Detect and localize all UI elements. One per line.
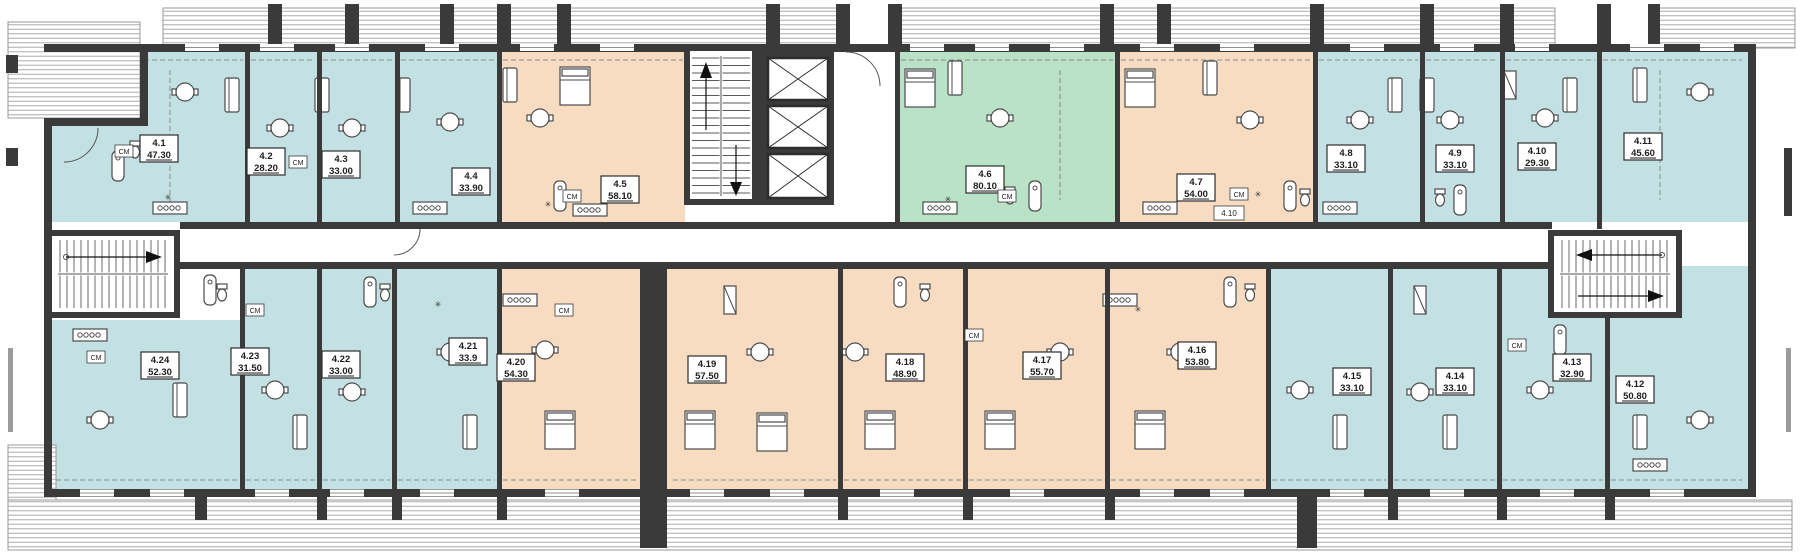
apartment-label-4.19: 4.1957.50 bbox=[688, 356, 726, 383]
svg-text:✳: ✳ bbox=[545, 200, 552, 209]
apartment-label-4.1: 4.147.30 bbox=[140, 135, 178, 162]
svg-text:4.14: 4.14 bbox=[1446, 371, 1465, 382]
furniture-item bbox=[293, 415, 307, 449]
party-wall-right bbox=[1297, 493, 1317, 548]
furniture-item bbox=[1414, 286, 1426, 314]
washer-tag: СМ bbox=[246, 304, 264, 316]
svg-text:4.13: 4.13 bbox=[1563, 357, 1582, 368]
floor-plan-page: 4.147.30 4.228.20 4.333.00 4.433.90 4.55… bbox=[0, 0, 1800, 557]
apartment-4.8[interactable] bbox=[1313, 50, 1420, 222]
svg-text:✳: ✳ bbox=[945, 195, 952, 204]
apartment-label-4.20: 4.2054.30 bbox=[497, 354, 535, 381]
svg-text:СМ: СМ bbox=[559, 308, 570, 315]
svg-text:4.21: 4.21 bbox=[459, 341, 478, 352]
svg-text:4.6: 4.6 bbox=[978, 169, 991, 180]
balcony-left-corner bbox=[8, 22, 140, 118]
apartment-label-4.15: 4.1533.10 bbox=[1333, 368, 1371, 395]
furniture-item bbox=[153, 202, 187, 214]
elevator-shafts bbox=[768, 58, 828, 198]
svg-text:50.80: 50.80 bbox=[1623, 391, 1647, 402]
svg-text:СМ: СМ bbox=[1002, 194, 1013, 201]
svg-text:33.10: 33.10 bbox=[1334, 160, 1358, 171]
furniture-item bbox=[1633, 68, 1647, 102]
apartment-label-4.23: 4.2331.50 bbox=[231, 348, 269, 375]
apartment-4.22[interactable] bbox=[317, 266, 392, 493]
apartment-4.23[interactable] bbox=[240, 266, 317, 493]
furniture-item bbox=[217, 284, 227, 301]
apartment-label-4.7: 4.754.00 bbox=[1177, 174, 1215, 201]
furniture-item bbox=[1029, 181, 1041, 211]
svg-text:СМ: СМ bbox=[250, 308, 261, 315]
balcony-bottom bbox=[8, 500, 1792, 550]
svg-text:4.9: 4.9 bbox=[1448, 148, 1461, 159]
svg-text:4.22: 4.22 bbox=[332, 354, 351, 365]
washer-tag: СМ bbox=[998, 190, 1016, 202]
apartment-label-4.9: 4.933.10 bbox=[1436, 145, 1474, 172]
furniture-item bbox=[413, 202, 447, 214]
svg-text:33.10: 33.10 bbox=[1443, 160, 1467, 171]
svg-text:4.10: 4.10 bbox=[1528, 146, 1547, 157]
svg-text:33.10: 33.10 bbox=[1443, 383, 1467, 394]
svg-text:4.4: 4.4 bbox=[464, 171, 478, 182]
furniture-item bbox=[503, 68, 517, 102]
svg-text:✳: ✳ bbox=[435, 300, 442, 309]
furniture-item bbox=[1135, 411, 1165, 449]
furniture-item bbox=[1300, 189, 1310, 206]
svg-text:✳: ✳ bbox=[1135, 305, 1142, 314]
svg-text:31.50: 31.50 bbox=[238, 363, 262, 374]
furniture-item bbox=[1563, 78, 1577, 112]
apartment-label-4.18: 4.1848.90 bbox=[886, 354, 924, 381]
svg-text:47.30: 47.30 bbox=[147, 150, 171, 161]
furniture-item bbox=[573, 204, 607, 216]
svg-text:СМ: СМ bbox=[1234, 192, 1245, 199]
svg-text:4.8: 4.8 bbox=[1339, 148, 1352, 159]
furniture-item bbox=[1443, 415, 1457, 449]
svg-text:54.30: 54.30 bbox=[504, 369, 528, 380]
furniture-item bbox=[948, 61, 962, 95]
svg-text:53.80: 53.80 bbox=[1185, 357, 1209, 368]
apartment-4.4[interactable] bbox=[395, 50, 497, 222]
furniture-item bbox=[985, 411, 1015, 449]
apartment-label-4.10: 4.1029.30 bbox=[1518, 143, 1556, 170]
svg-text:58.10: 58.10 bbox=[608, 191, 632, 202]
apartment-label-4.5: 4.558.10 bbox=[601, 176, 639, 203]
svg-text:57.50: 57.50 bbox=[695, 371, 719, 382]
svg-text:4.19: 4.19 bbox=[698, 359, 717, 370]
furniture-item bbox=[1203, 61, 1217, 95]
svg-text:55.70: 55.70 bbox=[1030, 367, 1054, 378]
apartment-label-4.24: 4.2452.30 bbox=[141, 352, 179, 379]
apartment-label-4.17: 4.1755.70 bbox=[1023, 352, 1061, 379]
svg-text:✳: ✳ bbox=[1255, 190, 1262, 199]
svg-text:4.16: 4.16 bbox=[1188, 345, 1207, 356]
furniture-item bbox=[923, 202, 957, 214]
apartment-label-4.11: 4.1145.60 bbox=[1624, 133, 1662, 160]
svg-text:33.90: 33.90 bbox=[459, 183, 483, 194]
furniture-item bbox=[380, 284, 390, 301]
apartment-label-4.2: 4.228.20 bbox=[247, 148, 285, 175]
furniture-item bbox=[757, 413, 787, 451]
svg-text:80.10: 80.10 bbox=[973, 181, 997, 192]
apartment-4.24[interactable] bbox=[48, 320, 240, 493]
furniture-item bbox=[1224, 277, 1236, 307]
furniture-item bbox=[894, 277, 906, 307]
apartment-label-4.4: 4.433.90 bbox=[452, 168, 490, 195]
furniture-item bbox=[1454, 185, 1466, 215]
svg-text:45.60: 45.60 bbox=[1631, 148, 1655, 159]
apartment-label-4.21: 4.2133.9 bbox=[449, 338, 487, 365]
svg-text:33.9: 33.9 bbox=[459, 353, 478, 364]
furniture-item bbox=[73, 329, 107, 341]
apartment-4.5[interactable] bbox=[497, 50, 685, 222]
furniture-item bbox=[1125, 69, 1155, 107]
apartment-label-4.13: 4.1332.90 bbox=[1553, 354, 1591, 381]
furniture-item bbox=[1554, 325, 1566, 355]
furniture-item bbox=[1388, 78, 1402, 112]
svg-text:52.30: 52.30 bbox=[148, 367, 172, 378]
furniture-item bbox=[1633, 459, 1667, 471]
svg-text:48.90: 48.90 bbox=[893, 369, 917, 380]
apartment-label-4.12: 4.1250.80 bbox=[1616, 376, 1654, 403]
svg-text:33.00: 33.00 bbox=[329, 366, 353, 377]
furniture-item bbox=[1143, 202, 1177, 214]
svg-text:4.10: 4.10 bbox=[1221, 209, 1237, 218]
balcony-top-right bbox=[1655, 8, 1795, 48]
furniture-item bbox=[1504, 71, 1516, 99]
svg-text:4.20: 4.20 bbox=[507, 357, 526, 368]
svg-text:СМ: СМ bbox=[567, 194, 578, 201]
svg-text:4.1: 4.1 bbox=[152, 138, 166, 149]
washer-tag: СМ bbox=[555, 304, 573, 316]
svg-text:СМ: СМ bbox=[119, 149, 130, 156]
furniture-item bbox=[1333, 415, 1347, 449]
svg-text:54.00: 54.00 bbox=[1184, 189, 1208, 200]
right-stairwell bbox=[1548, 230, 1682, 318]
svg-text:28.20: 28.20 bbox=[254, 163, 278, 174]
svg-text:32.90: 32.90 bbox=[1560, 369, 1584, 380]
left-stairwell bbox=[44, 230, 180, 318]
washer-tag: СМ bbox=[115, 145, 133, 157]
svg-text:4.7: 4.7 bbox=[1189, 177, 1202, 188]
furniture-item bbox=[920, 284, 930, 301]
party-wall-center bbox=[640, 262, 667, 548]
washer-tag: СМ bbox=[1230, 188, 1248, 200]
central-core bbox=[684, 45, 834, 205]
svg-text:29.30: 29.30 bbox=[1525, 158, 1549, 169]
apartment-4.21[interactable] bbox=[392, 266, 497, 493]
svg-text:СМ: СМ bbox=[969, 333, 980, 340]
furniture-item bbox=[503, 294, 537, 306]
furniture-item bbox=[685, 411, 715, 449]
svg-text:✳: ✳ bbox=[165, 193, 172, 202]
svg-text:4.18: 4.18 bbox=[896, 357, 915, 368]
furniture-item bbox=[560, 67, 590, 105]
furniture-item bbox=[364, 277, 376, 307]
furniture-item bbox=[1435, 189, 1445, 206]
svg-text:4.23: 4.23 bbox=[241, 351, 260, 362]
svg-text:4.3: 4.3 bbox=[334, 154, 347, 165]
apartment-label-4.8: 4.833.10 bbox=[1327, 145, 1365, 172]
svg-text:СМ: СМ bbox=[91, 355, 102, 362]
balcony-top-middle bbox=[895, 8, 1555, 48]
apartment-label-4.22: 4.2233.00 bbox=[322, 351, 360, 378]
svg-text:4.12: 4.12 bbox=[1626, 379, 1645, 390]
svg-text:33.00: 33.00 bbox=[329, 166, 353, 177]
washer-tag: СМ bbox=[289, 156, 307, 168]
furniture-item bbox=[1323, 202, 1357, 214]
furniture-item bbox=[724, 286, 736, 314]
furniture-item bbox=[225, 78, 239, 112]
furniture-item bbox=[1245, 284, 1255, 301]
washer-tag: СМ bbox=[87, 351, 105, 363]
furniture-item bbox=[463, 415, 477, 449]
furniture-item bbox=[1633, 415, 1647, 449]
svg-text:4.11: 4.11 bbox=[1634, 136, 1653, 147]
svg-text:4.5: 4.5 bbox=[613, 179, 627, 190]
apartment-label-4.16: 4.1653.80 bbox=[1178, 342, 1216, 369]
svg-text:4.2: 4.2 bbox=[259, 151, 272, 162]
furniture-item bbox=[204, 275, 216, 305]
washer-tag: СМ bbox=[563, 190, 581, 202]
storage-label-4.10: 4.10 bbox=[1214, 206, 1244, 220]
furniture-item bbox=[545, 411, 575, 449]
apartment-label-4.6: 4.680.10 bbox=[966, 166, 1004, 193]
apartment-label-4.3: 4.333.00 bbox=[322, 151, 360, 178]
washer-tag: СМ bbox=[965, 329, 983, 341]
svg-text:СМ: СМ bbox=[293, 160, 304, 167]
furniture-item bbox=[173, 383, 187, 417]
apartment-4.11[interactable] bbox=[1597, 50, 1748, 222]
floor-plan: 4.147.30 4.228.20 4.333.00 4.433.90 4.55… bbox=[0, 0, 1800, 557]
apartment-label-4.14: 4.1433.10 bbox=[1436, 368, 1474, 395]
svg-text:СМ: СМ bbox=[1512, 343, 1523, 350]
svg-text:4.24: 4.24 bbox=[151, 355, 170, 366]
svg-text:4.15: 4.15 bbox=[1343, 371, 1362, 382]
furniture-item bbox=[1284, 181, 1296, 211]
furniture-item bbox=[905, 69, 935, 107]
furniture-item bbox=[865, 411, 895, 449]
svg-text:4.17: 4.17 bbox=[1033, 355, 1052, 366]
washer-tag: СМ bbox=[1508, 339, 1526, 351]
svg-text:33.10: 33.10 bbox=[1340, 383, 1364, 394]
